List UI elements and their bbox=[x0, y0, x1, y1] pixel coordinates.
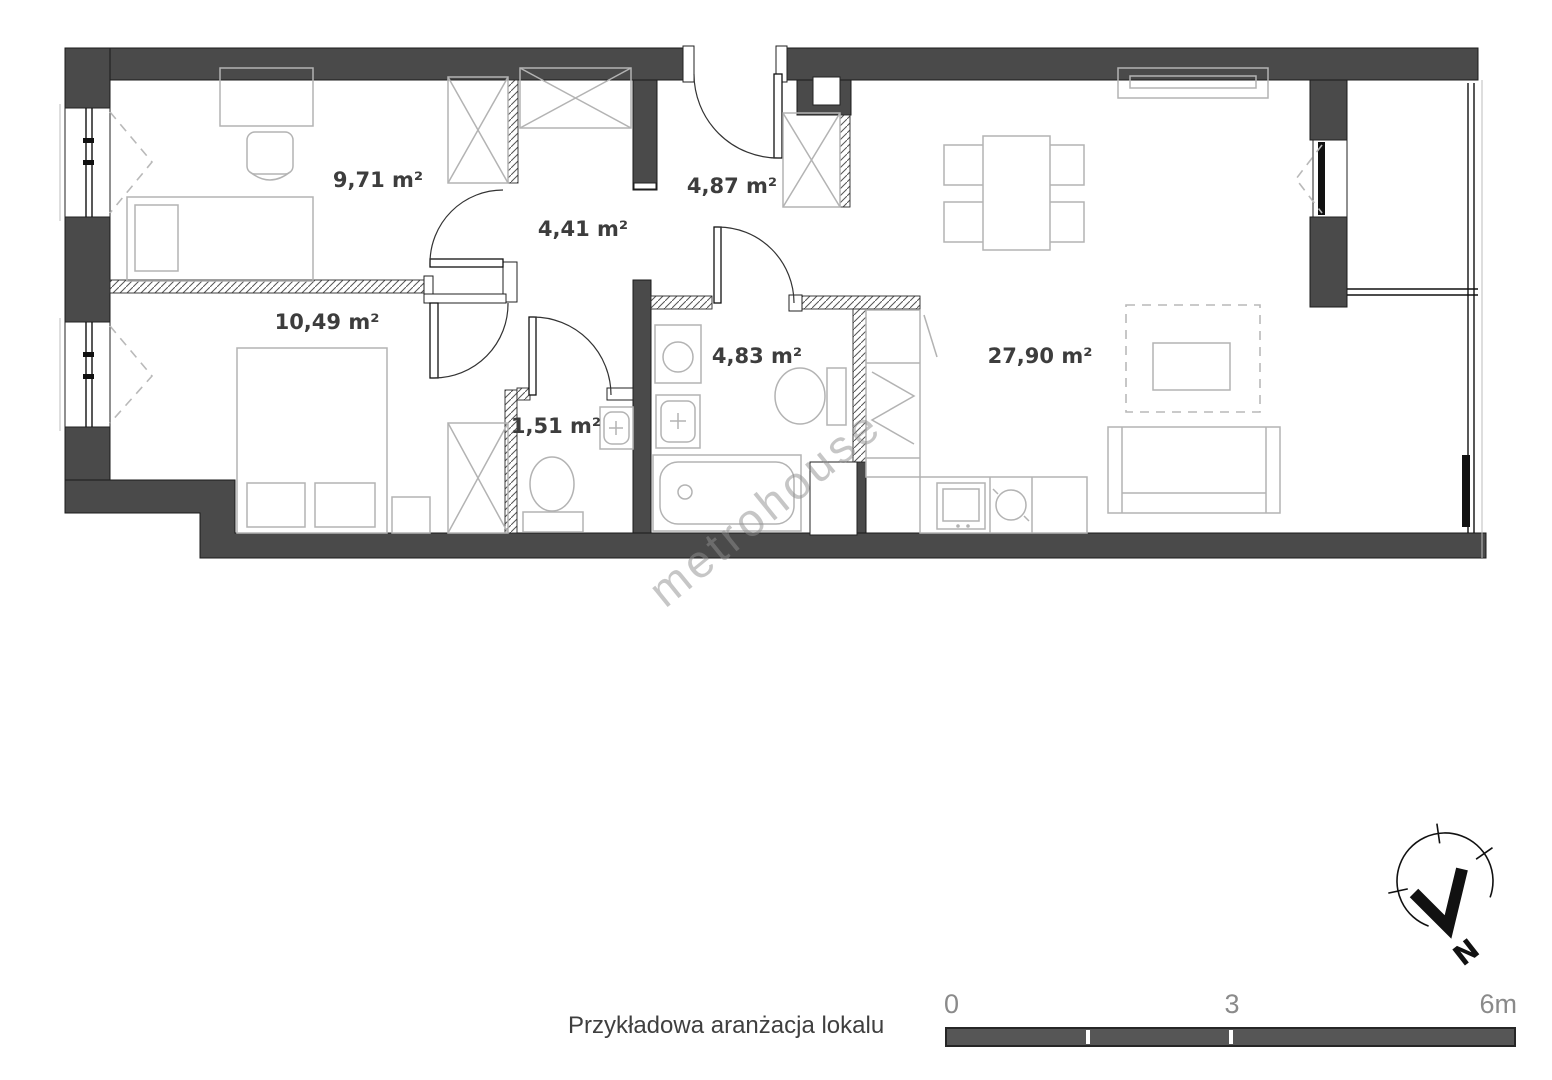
bathroom-area-label: 4,83 m² bbox=[712, 344, 802, 368]
bedroom-wardrobe-icon bbox=[448, 423, 508, 533]
wc-door bbox=[529, 317, 611, 395]
office-area-label: 9,71 m² bbox=[333, 168, 423, 192]
wc-sink-icon bbox=[600, 407, 633, 449]
bath-sink-icon bbox=[656, 395, 700, 448]
scale-end-label: 6m bbox=[1479, 989, 1517, 1019]
scale-bar: 0 3 6m bbox=[944, 989, 1517, 1046]
single-bed-icon bbox=[127, 197, 313, 281]
shaft-opening bbox=[813, 77, 840, 105]
hall-area-label: 4,41 m² bbox=[538, 217, 628, 241]
scale-start-label: 0 bbox=[944, 989, 959, 1019]
bathroom-door bbox=[714, 227, 794, 303]
double-bed-icon bbox=[237, 348, 387, 533]
chair-icon bbox=[944, 145, 984, 185]
hall-pillar bbox=[633, 80, 657, 190]
balcony-door-panel bbox=[1318, 142, 1325, 215]
nightstand-icon bbox=[392, 497, 430, 533]
wc-area-label: 1,51 m² bbox=[511, 414, 601, 438]
chair-icon bbox=[944, 202, 984, 242]
office-door bbox=[430, 190, 503, 267]
balcony-glazing-door bbox=[1462, 455, 1470, 527]
loggia bbox=[1296, 80, 1482, 558]
office-chair-icon bbox=[247, 132, 293, 180]
entry-area-label: 4,87 m² bbox=[687, 174, 777, 198]
window-left-bottom bbox=[60, 318, 152, 431]
wardrobe-icon bbox=[448, 77, 508, 183]
entry-wardrobe-icon bbox=[783, 113, 840, 207]
north-label: N bbox=[1447, 932, 1486, 972]
coffee-table-icon bbox=[1153, 343, 1230, 390]
bedroom-area-label: 10,49 m² bbox=[275, 310, 380, 334]
entrance-door bbox=[694, 74, 782, 158]
floorplan-page: metrohouse 9,71 m² 4,87 m² 4,41 m² 10,49… bbox=[0, 0, 1552, 1080]
oven-icon bbox=[937, 483, 985, 529]
washing-machine-icon bbox=[655, 325, 701, 383]
kitchen-sink-icon bbox=[990, 477, 1032, 533]
window-left-top bbox=[60, 104, 152, 221]
scale-mid-label: 3 bbox=[1224, 989, 1239, 1019]
wc-toilet-icon bbox=[523, 457, 583, 532]
plan-caption: Przykładowa aranżacja lokalu bbox=[568, 1012, 884, 1039]
living-area-label: 27,90 m² bbox=[988, 344, 1093, 368]
sofa-icon bbox=[1108, 427, 1280, 513]
floor-plan: metrohouse 9,71 m² 4,87 m² 4,41 m² 10,49… bbox=[0, 0, 1552, 1080]
bedroom-door bbox=[430, 303, 508, 378]
compass-north-icon: N bbox=[1388, 824, 1493, 973]
dining-table-icon bbox=[944, 136, 1084, 250]
wc-bath-divider bbox=[633, 280, 651, 533]
